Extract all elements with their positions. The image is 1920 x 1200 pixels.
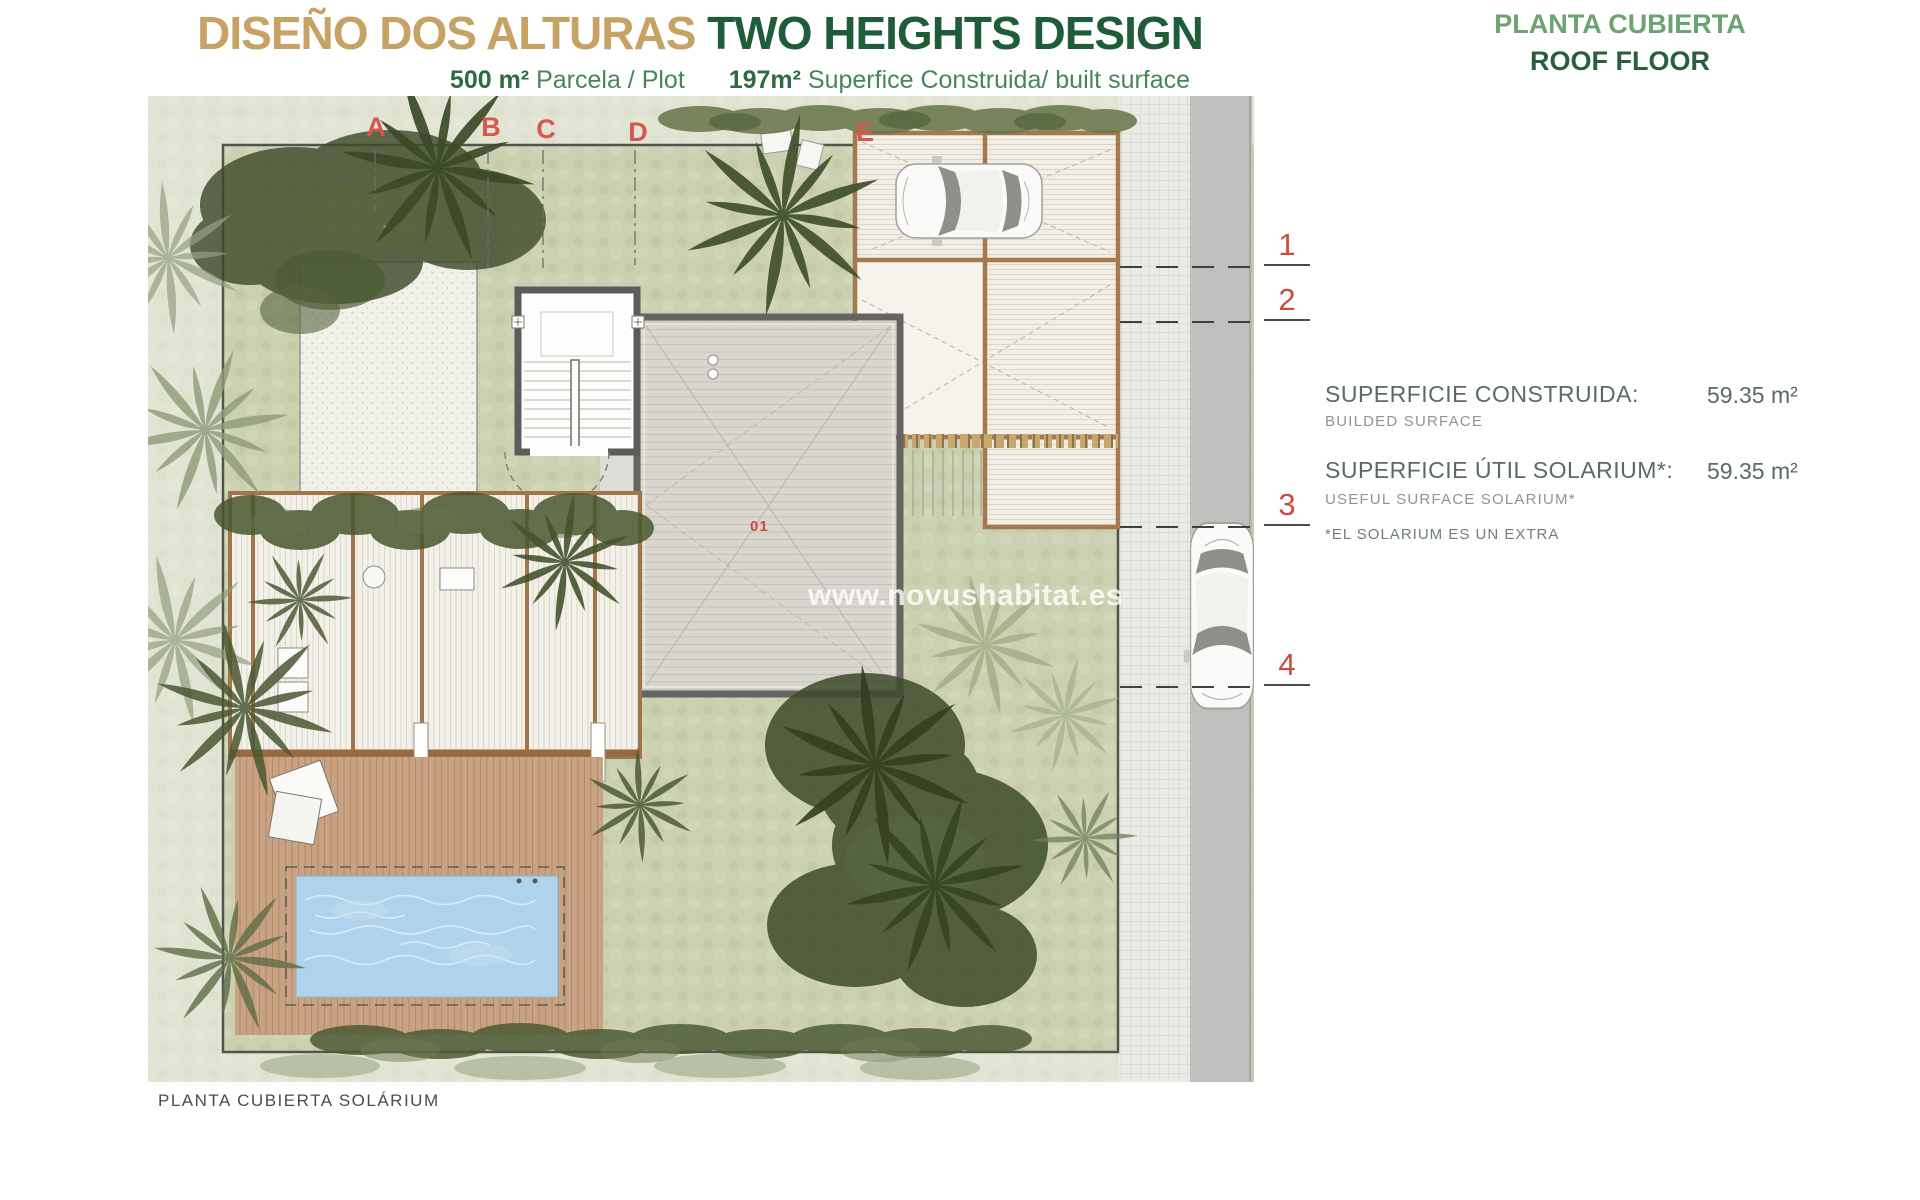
plot-area-label: Parcela / Plot [536, 66, 685, 94]
grid-row-2: 2 [1264, 277, 1310, 321]
solarium-surface-value: 59.35 m² [1707, 458, 1798, 485]
room-label: 01 [750, 518, 769, 535]
grid-column-d: D [624, 117, 652, 148]
street-car [1184, 523, 1254, 708]
plan-title-english: ROOF FLOOR [1472, 43, 1768, 80]
subtitle: 500 m² Parcela / Plot 197m² Superfice Co… [420, 66, 1220, 95]
plan-caption: PLANTA CUBIERTA SOLÁRIUM [158, 1091, 440, 1111]
solarium-surface-label-en: USEFUL SURFACE SOLARIUM* [1325, 491, 1576, 508]
grid-row-1: 1 [1264, 222, 1310, 266]
grid-row-4-leader [1120, 686, 1262, 688]
watermark: www.novushabitat.es [808, 579, 1123, 613]
grid-column-e: E [851, 117, 879, 148]
grid-row-2-leader [1120, 321, 1262, 323]
solarium-surface-label-es: SUPERFICIE ÚTIL SOLARIUM*: [1325, 457, 1673, 484]
solarium-footnote: *EL SOLARIUM ES UN EXTRA [1325, 526, 1559, 543]
grid-row-4: 4 [1264, 642, 1310, 686]
grid-column-c: C [532, 114, 560, 145]
built-surface-label-es: SUPERFICIE CONSTRUIDA: [1325, 381, 1639, 408]
built-surface-label-en: BUILDED SURFACE [1325, 413, 1483, 430]
swimming-pool [286, 867, 564, 1005]
grid-row-3: 3 [1264, 482, 1310, 526]
built-surface-value: 59.35 m² [1707, 382, 1798, 409]
plan-title-spanish: PLANTA CUBIERTA [1472, 6, 1768, 43]
built-area-value: 197m² [729, 66, 801, 94]
page-title: DISEÑO DOS ALTURAS TWO HEIGHTS DESIGN [130, 6, 1270, 60]
carport-car [896, 156, 1042, 246]
title-spanish: DISEÑO DOS ALTURAS [197, 7, 695, 59]
surface-info-panel: SUPERFICIE CONSTRUIDA: 59.35 m² BUILDED … [1325, 381, 1865, 561]
title-english: TWO HEIGHTS DESIGN [707, 7, 1203, 59]
plot-area-value: 500 m² [450, 66, 529, 94]
grid-row-1-leader [1120, 266, 1262, 268]
grid-column-b: B [477, 112, 505, 143]
grid-column-a: A [362, 112, 390, 143]
grid-row-3-leader [1120, 526, 1262, 528]
solarium-deck [600, 317, 900, 694]
plan-title: PLANTA CUBIERTA ROOF FLOOR [1472, 6, 1768, 80]
built-area-label: Superfice Construida/ built surface [808, 66, 1190, 94]
sidewalk [1118, 96, 1190, 1082]
